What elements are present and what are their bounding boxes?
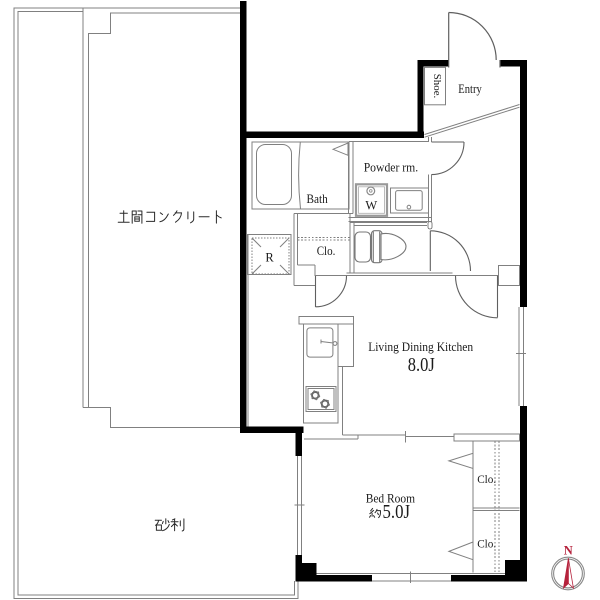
svg-text:Clo.: Clo.: [477, 472, 496, 486]
svg-text:8.0J: 8.0J: [408, 354, 435, 376]
svg-text:Bath: Bath: [307, 192, 329, 206]
svg-text:5.0J: 5.0J: [383, 502, 411, 523]
svg-text:Living Dining Kitchen: Living Dining Kitchen: [368, 340, 474, 354]
svg-text:R: R: [265, 251, 274, 265]
svg-text:Powder rm.: Powder rm.: [364, 161, 419, 175]
svg-text:N: N: [564, 544, 573, 558]
svg-text:W: W: [365, 199, 377, 213]
svg-text:Clo.: Clo.: [477, 536, 496, 550]
svg-text:Entry: Entry: [458, 82, 482, 96]
svg-text:Shoe.: Shoe.: [431, 74, 443, 99]
svg-text:Clo.: Clo.: [317, 244, 336, 258]
